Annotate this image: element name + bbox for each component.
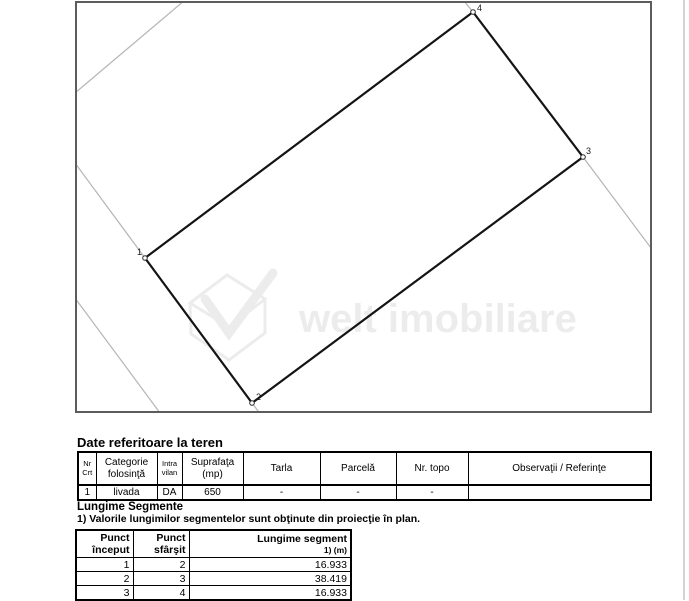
cadastral-plan-frame: welt imobiliare1234: [75, 1, 652, 413]
table-cell: 1: [76, 558, 133, 572]
land-table-row: 1livadaDA650---: [78, 485, 651, 500]
neighbor-boundary-line: [77, 298, 163, 411]
segment-table-row: 2338.419: [76, 572, 351, 586]
watermark: welt imobiliare: [190, 273, 577, 360]
table-cell: 1: [78, 485, 96, 500]
table-cell: 650: [182, 485, 243, 500]
table-cell: -: [396, 485, 468, 500]
segment-table-row: 3416.933: [76, 586, 351, 601]
parcel-vertex-label: 4: [477, 3, 482, 13]
table-cell: DA: [157, 485, 182, 500]
col-header-observatii: Observaţii / Referinţe: [468, 452, 651, 485]
table-cell: 3: [133, 572, 189, 586]
segment-length-table: Punct început Punct sfârşit Lungime segm…: [75, 529, 352, 601]
table-cell: 16.933: [189, 586, 351, 601]
land-section-title: Date referitoare la teren: [77, 435, 223, 450]
col-header-punct-inceput: Punct început: [76, 530, 133, 558]
neighbor-boundary-line: [583, 157, 650, 248]
segment-table-header-row: Punct început Punct sfârşit Lungime segm…: [76, 530, 351, 558]
parcel-vertex-label: 3: [586, 146, 591, 156]
table-cell: -: [320, 485, 396, 500]
segment-table-row: 1216.933: [76, 558, 351, 572]
parcel-vertex-marker: [250, 401, 255, 406]
table-cell: -: [243, 485, 320, 500]
parcel-vertex-marker: [581, 155, 586, 160]
col-header-nr-crt: Nr Crt: [78, 452, 96, 485]
col-header-punct-sfarsit: Punct sfârşit: [133, 530, 189, 558]
col-header-suprafata: Suprafaţa (mp): [182, 452, 243, 485]
land-data-table: Nr Crt Categorie folosinţă Intra vilan S…: [77, 451, 652, 501]
parcel-vertex-label: 2: [256, 392, 261, 402]
land-table-header-row: Nr Crt Categorie folosinţă Intra vilan S…: [78, 452, 651, 485]
col-header-parcela: Parcelă: [320, 452, 396, 485]
col-header-categorie-folosinta: Categorie folosinţă: [96, 452, 157, 485]
table-cell: 16.933: [189, 558, 351, 572]
segments-note: 1) Valorile lungimilor segmentelor sunt …: [77, 513, 420, 525]
table-cell: 38.419: [189, 572, 351, 586]
segments-section-title: Lungime Segmente: [77, 501, 183, 513]
table-cell: 2: [133, 558, 189, 572]
neighbor-boundary-line: [77, 3, 185, 93]
table-cell: 3: [76, 586, 133, 601]
parcel-vertex-marker: [143, 256, 148, 261]
watermark-text: welt imobiliare: [298, 297, 577, 341]
parcel-boundary-polygon: [145, 12, 583, 403]
parcel-vertex-label: 1: [137, 247, 142, 257]
cadastral-plan: welt imobiliare1234: [77, 3, 650, 411]
col-header-nr-topo: Nr. topo: [396, 452, 468, 485]
table-cell: [468, 485, 651, 500]
table-cell: 2: [76, 572, 133, 586]
col-header-intravilan: Intra vilan: [157, 452, 182, 485]
table-cell: 4: [133, 586, 189, 601]
parcel-vertex-marker: [471, 10, 476, 15]
col-header-lungime-segment: Lungime segment 1) (m): [189, 530, 351, 558]
table-cell: livada: [96, 485, 157, 500]
col-header-tarla: Tarla: [243, 452, 320, 485]
neighbor-boundary-line: [77, 163, 145, 258]
page-edge-band: [683, 0, 685, 600]
